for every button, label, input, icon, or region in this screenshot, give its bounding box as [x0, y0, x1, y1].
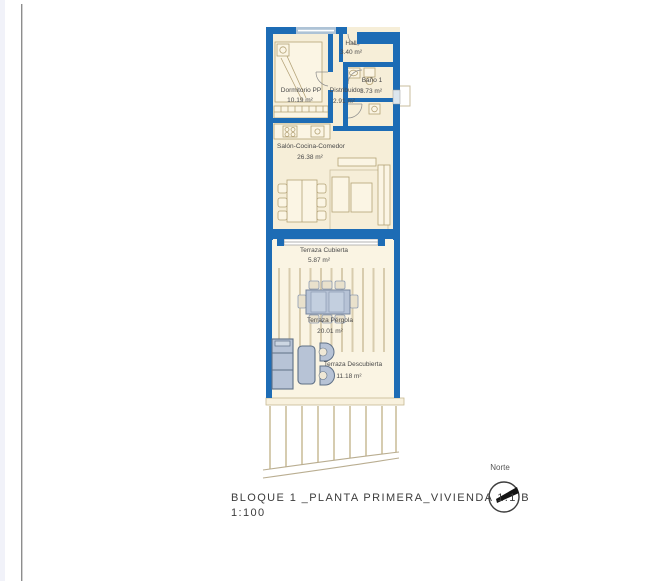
north-arrow-label: Norte	[490, 463, 510, 472]
washing-machine	[369, 104, 380, 114]
room-area-terraza-pergola: 20.01 m²	[317, 328, 343, 336]
room-area-dormitorio: 10.19 m²	[287, 97, 313, 105]
sun-loungers	[272, 339, 315, 389]
room-label-hall: Hall	[345, 40, 356, 48]
page-border-line	[0, 0, 22, 581]
room-label-salon: Salón-Cocina-Comedor	[277, 143, 345, 151]
plan-title: BLOQUE 1 _PLANTA PRIMERA_VIVIENDA 1.1.B	[231, 492, 530, 504]
kitchen-counter	[274, 124, 330, 139]
room-label-distribuidor: Distribuidor	[330, 87, 363, 95]
room-area-hall: 3.40 m²	[340, 49, 362, 57]
room-area-terraza-descubierta: 11.18 m²	[336, 373, 361, 381]
dining-table	[278, 180, 326, 222]
room-area-distribuidor: 2.91 m²	[333, 98, 355, 106]
room-label-dormitorio: Dormitorio PP	[281, 87, 321, 95]
room-area-terraza-cubierta: 5.87 m²	[308, 257, 330, 265]
room-label-bano: Baño 1	[362, 77, 383, 85]
room-label-terraza-cubierta: Terraza Cubierta	[300, 247, 348, 255]
title-block: BLOQUE 1 _PLANTA PRIMERA_VIVIENDA 1.1.B …	[231, 492, 530, 519]
garden-slats	[263, 406, 399, 492]
sliding-glass-door	[284, 239, 378, 245]
room-area-bano: 3.73 m²	[360, 88, 382, 96]
wardrobe	[274, 106, 328, 118]
room-area-salon: 26.38 m²	[297, 154, 323, 162]
page: Dormitorio PP 10.19 m² Hall 3.40 m² Dist…	[0, 0, 656, 581]
plan-scale: 1:100	[231, 507, 530, 519]
room-label-terraza-descubierta: Terraza Descubierta	[324, 361, 382, 369]
room-label-terraza-pergola: Terraza Pérgola	[307, 317, 353, 325]
